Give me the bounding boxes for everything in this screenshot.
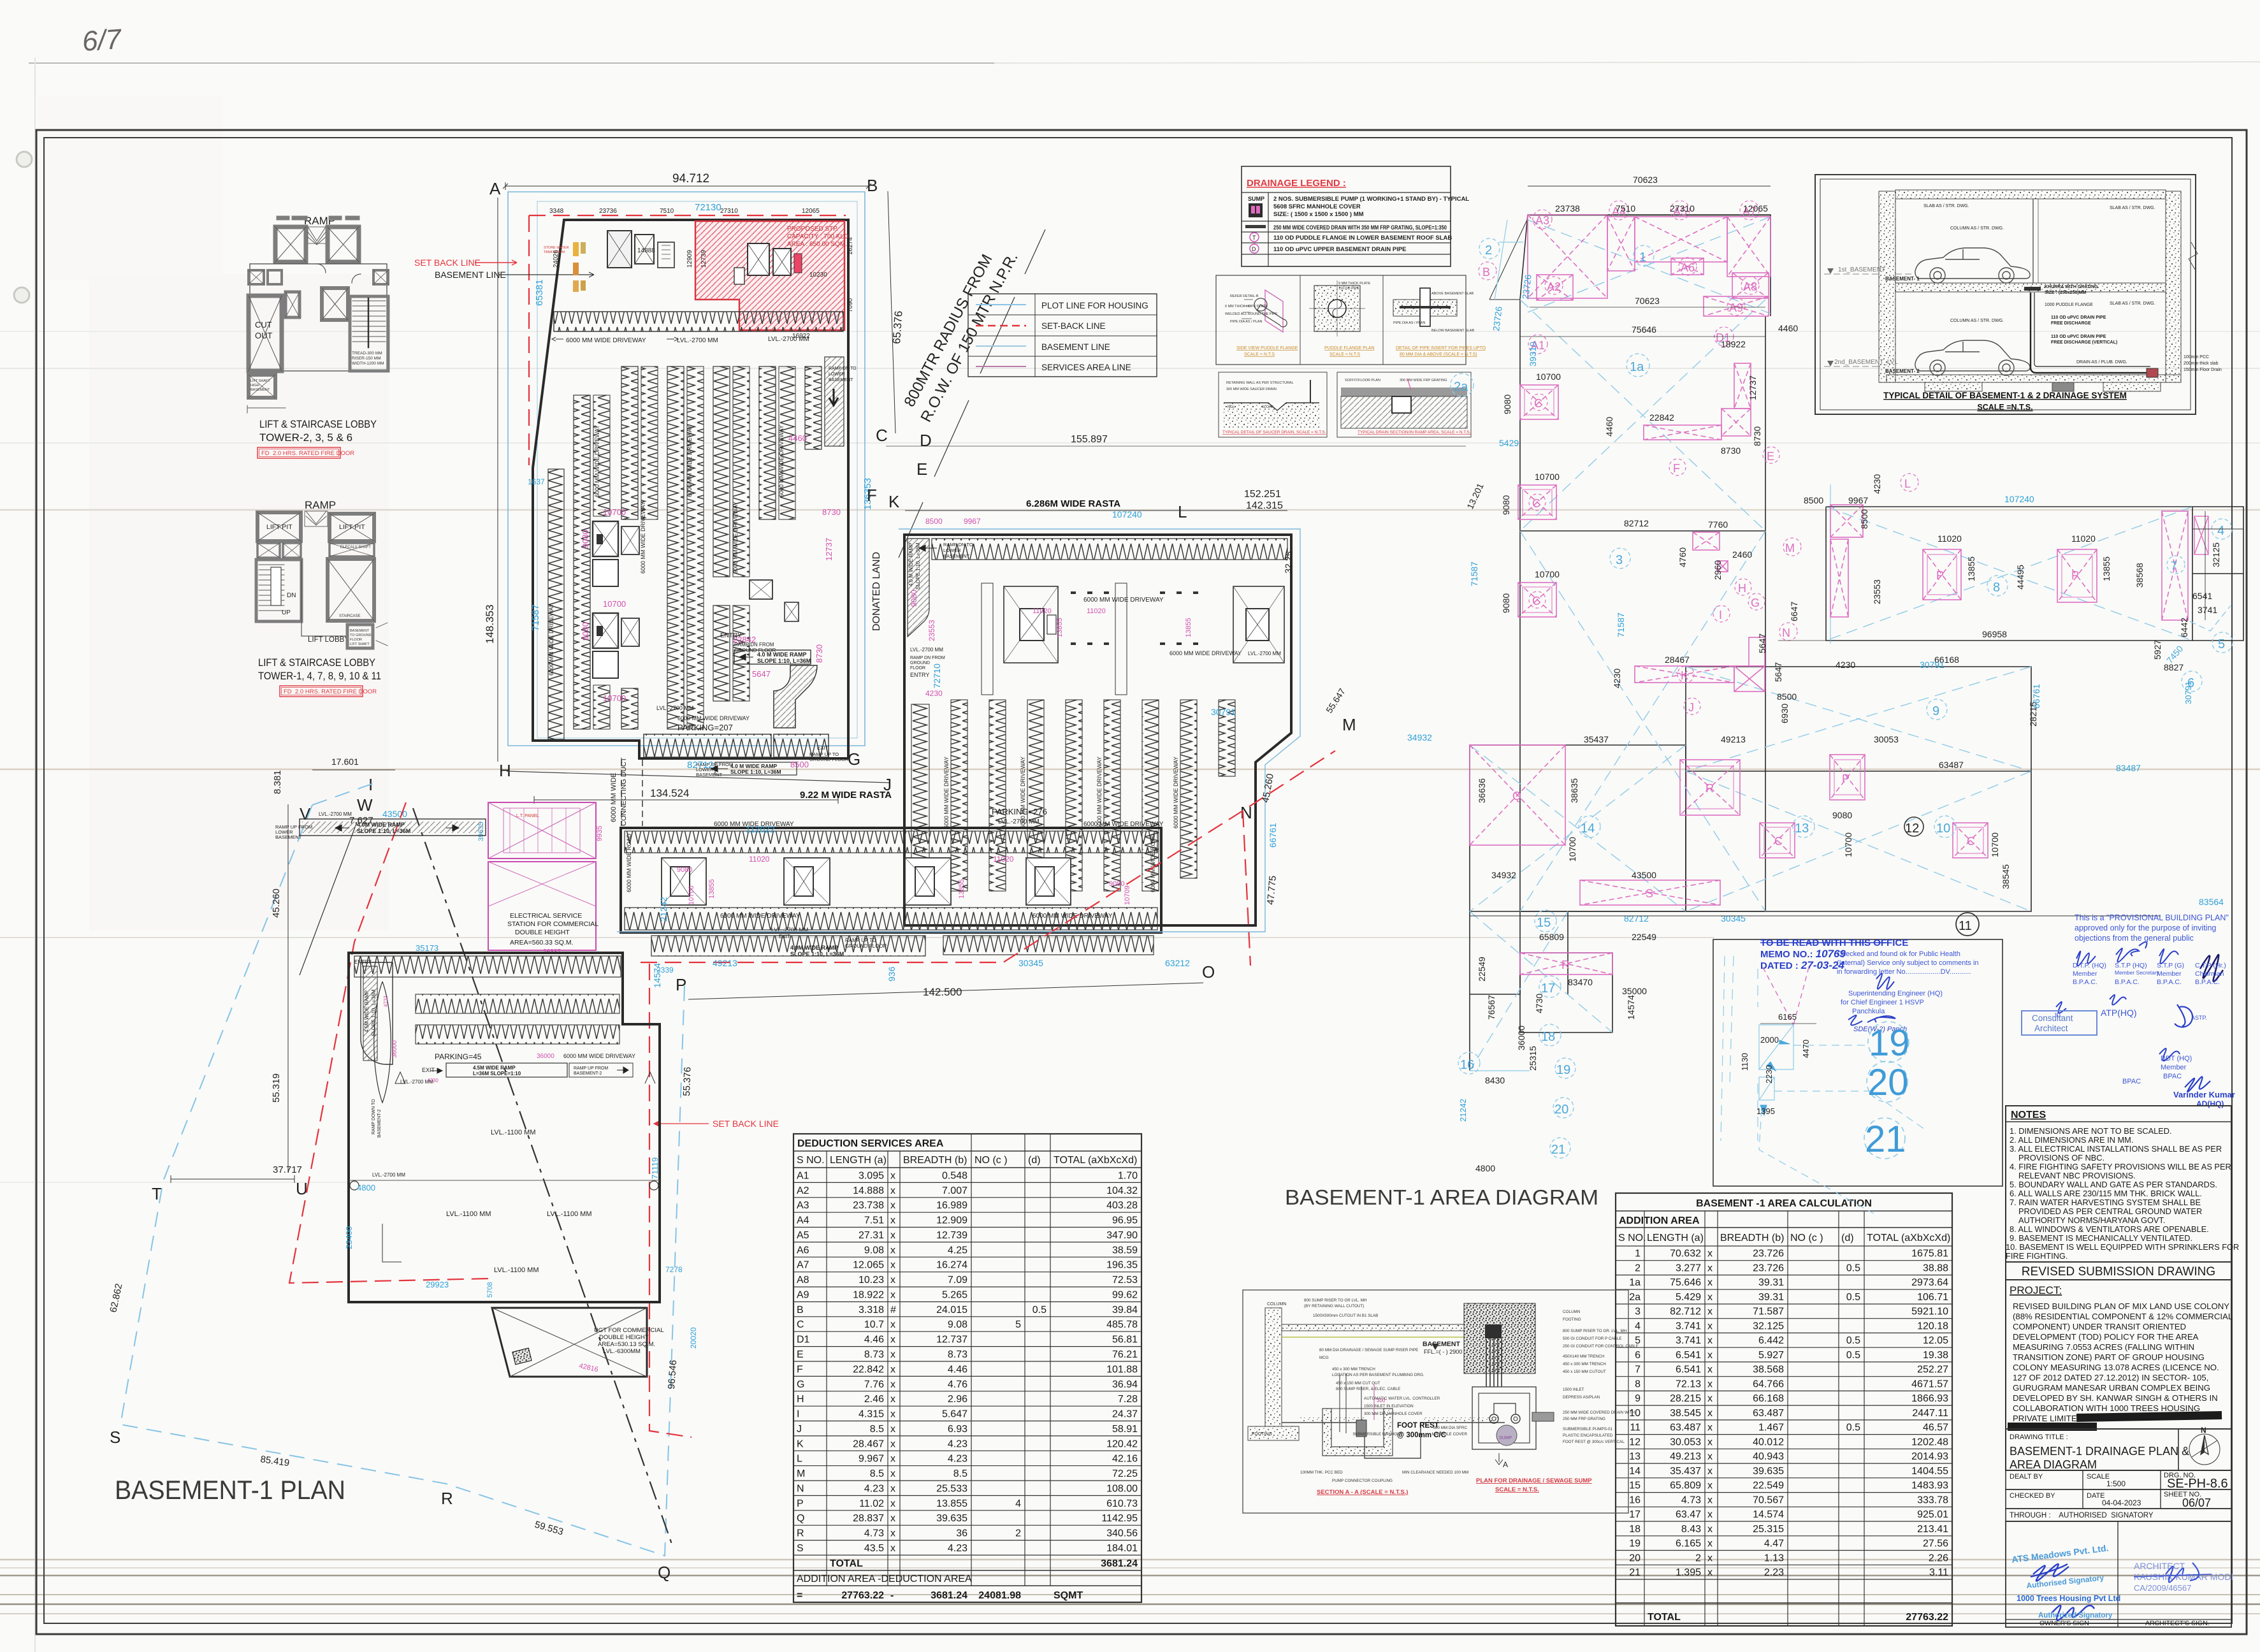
svg-text:30791: 30791	[2184, 681, 2193, 704]
svg-text:MIN CLEARANCE NEEDED 100 MM: MIN CLEARANCE NEEDED 100 MM	[1402, 1470, 1468, 1475]
svg-text:0.5: 0.5	[1846, 1423, 1860, 1433]
svg-text:3741: 3741	[2198, 605, 2217, 615]
svg-text:300 MM WIDE FRP GRATING: 300 MM WIDE FRP GRATING	[1400, 379, 1447, 382]
svg-text:21242: 21242	[658, 897, 669, 922]
svg-text:6000 MM WIDE: 6000 MM WIDE	[610, 772, 618, 822]
svg-text:x: x	[890, 1498, 895, 1509]
svg-text:DN: DN	[287, 592, 296, 599]
svg-text:4800: 4800	[357, 1183, 375, 1192]
svg-text:9080: 9080	[909, 590, 918, 607]
svg-text:13855: 13855	[1185, 618, 1192, 637]
svg-text:DEALT BY: DEALT BY	[2010, 1473, 2043, 1481]
svg-text:23400: 23400	[344, 1226, 354, 1249]
svg-text:LVL.-1100 MM: LVL.-1100 MM	[491, 1129, 536, 1136]
svg-text:D.T.P. (HQ): D.T.P. (HQ)	[2073, 962, 2106, 969]
svg-text:107240: 107240	[1112, 509, 1142, 519]
svg-text:D: D	[1252, 246, 1256, 252]
svg-text:22549: 22549	[1477, 957, 1487, 982]
svg-text:A8: A8	[797, 1275, 809, 1286]
svg-text:9967: 9967	[964, 517, 981, 526]
svg-text:K: K	[888, 492, 900, 511]
svg-text:DOUBLE HEIGHT: DOUBLE HEIGHT	[599, 1334, 649, 1341]
svg-text:99.62: 99.62	[1112, 1290, 1138, 1301]
svg-text:63.487: 63.487	[1753, 1408, 1784, 1419]
svg-text:1500 INLET IN ELEVATION: 1500 INLET IN ELEVATION	[1364, 1404, 1414, 1409]
svg-text:250 MM WIDE COVERED DRAIN WITH: 250 MM WIDE COVERED DRAIN WITH	[1563, 1410, 1635, 1415]
svg-text:4671.57: 4671.57	[1911, 1379, 1948, 1389]
svg-text:49.213: 49.213	[1670, 1451, 1701, 1462]
svg-text:BASEMENT- 2: BASEMENT- 2	[1885, 368, 1920, 374]
svg-text:38.568: 38.568	[1753, 1365, 1784, 1375]
svg-text:COLUMN: COLUMN	[1563, 1310, 1581, 1314]
svg-text:REVISED BUILDING PLAN OF MIX L: REVISED BUILDING PLAN OF MIX LAND USE CO…	[2013, 1301, 2229, 1311]
svg-text:12739: 12739	[700, 250, 707, 268]
svg-text:2.0 HRS. RATED FIRE DOOR: 2.0 HRS. RATED FIRE DOOR	[295, 688, 377, 695]
svg-text:AREA=530.13 SQ.M.: AREA=530.13 SQ.M.	[598, 1341, 655, 1348]
svg-text:LVL.-6300MM: LVL.-6300MM	[603, 1348, 641, 1355]
svg-text:6000 MM WIDE ROAD: 6000 MM WIDE ROAD	[626, 833, 632, 892]
svg-text:x: x	[1707, 1365, 1713, 1375]
svg-text:4800: 4800	[1475, 1163, 1495, 1173]
svg-text:6000 MM WIDE DRIVEWAY: 6000 MM WIDE DRIVEWAY	[563, 1053, 635, 1059]
svg-text:x: x	[1707, 1321, 1713, 1331]
svg-text:BASEMENT-2: BASEMENT-2	[574, 1071, 602, 1076]
svg-text:J: J	[797, 1424, 802, 1435]
svg-text:x: x	[890, 1170, 895, 1181]
svg-text:RAMP DN TO: RAMP DN TO	[943, 542, 973, 547]
svg-text:EXIT: EXIT	[817, 745, 829, 751]
svg-text:12065: 12065	[802, 208, 820, 215]
svg-text:LVL.-1100 MM: LVL.-1100 MM	[494, 1266, 539, 1274]
svg-text:8430: 8430	[1485, 1075, 1505, 1085]
svg-text:13.855: 13.855	[936, 1498, 967, 1509]
svg-text:6.165: 6.165	[1676, 1539, 1701, 1549]
svg-text:150mm Floor Drain: 150mm Floor Drain	[2184, 368, 2222, 372]
svg-text:13: 13	[1795, 822, 1809, 836]
svg-text:1a: 1a	[1630, 360, 1644, 374]
svg-text:4.76: 4.76	[948, 1379, 967, 1390]
svg-text:x: x	[1707, 1350, 1713, 1361]
svg-text:LOCATION AS PER BASEMENT PLUMB: LOCATION AS PER BASEMENT PLUMBING DRG.	[1332, 1373, 1424, 1377]
svg-text:23736: 23736	[599, 208, 617, 215]
svg-text:38568: 38568	[2134, 563, 2145, 588]
svg-text:Architect: Architect	[2034, 1024, 2068, 1033]
svg-text:x: x	[890, 1349, 895, 1360]
svg-text:34932: 34932	[1491, 870, 1516, 880]
svg-text:8.5: 8.5	[870, 1424, 884, 1435]
svg-text:6. ALL WALLS ARE 230/115 MM TH: 6. ALL WALLS ARE 230/115 MM THK. BRICK W…	[2010, 1189, 2202, 1198]
svg-text:10709: 10709	[1124, 885, 1131, 905]
svg-text:4.23: 4.23	[948, 1543, 967, 1554]
svg-text:4730: 4730	[1534, 994, 1544, 1013]
svg-text:SIZE : (250x250)MM: SIZE : (250x250)MM	[2045, 291, 2087, 295]
svg-text:6.442: 6.442	[1758, 1335, 1784, 1346]
svg-text:C: C	[1967, 835, 1975, 848]
svg-text:925.01: 925.01	[1917, 1509, 1948, 1520]
svg-text:80 MM DIA & ABOVE (SCALE = N.T: 80 MM DIA & ABOVE (SCALE = N.T.S)	[1400, 352, 1477, 357]
svg-text:MANHOLE COVER: MANHOLE COVER	[1432, 1432, 1468, 1437]
svg-text:A1: A1	[797, 1170, 809, 1181]
svg-text:MEMO NO.: 10769: MEMO NO.: 10769	[1760, 948, 1846, 960]
svg-text:PUMP CONNECTOR COUPLING: PUMP CONNECTOR COUPLING	[1332, 1479, 1393, 1483]
svg-text:10700: 10700	[603, 507, 626, 517]
svg-text:LVL.-2700 MM: LVL.-2700 MM	[998, 818, 1039, 825]
svg-text:250 MM WIDE COVERED DRAIN WITH: 250 MM WIDE COVERED DRAIN WITH 350 MM FR…	[1273, 224, 1447, 231]
svg-text:TRANSITION ZONE) PART OF GROUP: TRANSITION ZONE) PART OF GROUP HOUSING	[2013, 1352, 2205, 1362]
svg-text:34932: 34932	[1407, 732, 1432, 743]
svg-text:3.095: 3.095	[858, 1170, 884, 1181]
svg-text:3.741: 3.741	[1676, 1335, 1701, 1346]
svg-text:DRAWING TITLE :: DRAWING TITLE :	[2010, 1433, 2068, 1441]
svg-text:LVL.-2700 MM: LVL.-2700 MM	[1248, 651, 1281, 656]
svg-text:AREA=560.33 SQ.M.: AREA=560.33 SQ.M.	[510, 939, 574, 946]
svg-text:EXIT: EXIT	[422, 1067, 435, 1073]
svg-text:LENGTH (a): LENGTH (a)	[830, 1155, 887, 1166]
svg-text:BASEMENT-2: BASEMENT-2	[377, 1110, 382, 1138]
svg-text:SET BACK LINE: SET BACK LINE	[414, 257, 481, 268]
svg-text:NOTES: NOTES	[2011, 1110, 2046, 1120]
svg-text:PROVISIONS OF NBC.: PROVISIONS OF NBC.	[2018, 1153, 2104, 1163]
svg-text:27.31: 27.31	[858, 1230, 884, 1241]
svg-text:7: 7	[1635, 1365, 1641, 1375]
svg-text:0.548: 0.548	[942, 1170, 967, 1181]
svg-text:101.88: 101.88	[1106, 1364, 1138, 1375]
svg-text:SCALE = N.T.S: SCALE = N.T.S	[1329, 352, 1360, 357]
svg-text:SLOPE 1:10, L=36M: SLOPE 1:10, L=36M	[357, 828, 410, 834]
svg-text:9935: 9935	[596, 826, 604, 841]
svg-text:COLUMN: COLUMN	[1267, 1302, 1286, 1307]
svg-text:9. BASEMENT IS MECHANICALLY VE: 9. BASEMENT IS MECHANICALLY VENTILATED.	[2010, 1233, 2192, 1243]
svg-text:11020: 11020	[1087, 607, 1106, 615]
svg-text:1500X500mm CUTOUT IN B1 SLAB: 1500X500mm CUTOUT IN B1 SLAB	[1313, 1314, 1378, 1318]
svg-text:0.5: 0.5	[1846, 1263, 1860, 1274]
svg-text:OUT: OUT	[255, 331, 273, 340]
svg-text:7.09: 7.09	[948, 1275, 967, 1286]
svg-text:4.73: 4.73	[864, 1528, 884, 1539]
svg-text:2: 2	[1015, 1528, 1021, 1539]
svg-text:12.065: 12.065	[853, 1260, 884, 1271]
svg-text:(BY RETAINING WALL CUTOUT): (BY RETAINING WALL CUTOUT)	[1304, 1304, 1364, 1308]
svg-text:Q: Q	[658, 1563, 670, 1582]
svg-text:40.943: 40.943	[1753, 1451, 1784, 1462]
svg-text:A8: A8	[1743, 280, 1757, 293]
svg-text:GURUGRAM MANESAR URBAN COMPLEX: GURUGRAM MANESAR URBAN COMPLEX BEING	[2013, 1383, 2210, 1393]
svg-text:A3: A3	[1535, 214, 1549, 227]
svg-text:16: 16	[1629, 1495, 1641, 1505]
svg-text:KHURRA WITH GRATING: KHURRA WITH GRATING	[2045, 285, 2098, 289]
svg-text:TOTAL (aXbXcXd): TOTAL (aXbXcXd)	[1054, 1155, 1137, 1166]
svg-text:4.23: 4.23	[864, 1484, 884, 1495]
svg-text:7760: 7760	[1708, 519, 1728, 530]
svg-text:3: 3	[1616, 553, 1623, 567]
svg-text:Member: Member	[2157, 970, 2182, 978]
svg-text:x: x	[1707, 1524, 1713, 1535]
svg-text:14.574: 14.574	[1753, 1509, 1784, 1520]
svg-text:CONNECTING DUCT: CONNECTING DUCT	[620, 757, 628, 826]
svg-text:36.94: 36.94	[1112, 1379, 1138, 1390]
svg-text:x: x	[1707, 1335, 1713, 1346]
svg-text:2: 2	[1635, 1263, 1641, 1274]
svg-text:x: x	[890, 1230, 895, 1241]
svg-text:8730: 8730	[1752, 426, 1762, 446]
svg-text:SLAB AS / STR. DWG.: SLAB AS / STR. DWG.	[2110, 301, 2155, 306]
svg-text:10700: 10700	[688, 885, 695, 905]
svg-text:RELEVANT NBC PROVISIONS.: RELEVANT NBC PROVISIONS.	[2018, 1171, 2136, 1180]
svg-text:4: 4	[2217, 524, 2224, 538]
svg-text:8827: 8827	[2164, 662, 2184, 672]
svg-text:BASEMENT-1 AREA DIAGRAM: BASEMENT-1 AREA DIAGRAM	[1285, 1185, 1598, 1209]
svg-text:SLAB AS / STR. DWG.: SLAB AS / STR. DWG.	[1923, 204, 1969, 208]
svg-text:J: J	[1688, 701, 1694, 714]
svg-text:A5: A5	[797, 1230, 809, 1241]
svg-text:4.23: 4.23	[948, 1438, 967, 1449]
svg-text:55.376: 55.376	[681, 1067, 693, 1096]
svg-text:15: 15	[1537, 916, 1551, 930]
svg-text:4230: 4230	[1836, 660, 1855, 670]
svg-text:66761: 66761	[2031, 684, 2041, 709]
svg-text:U: U	[296, 1179, 308, 1198]
svg-text:C: C	[876, 426, 888, 445]
svg-text:2 NOS. SUBMERSIBLE PUMP (1 WOR: 2 NOS. SUBMERSIBLE PUMP (1 WORKING+1 STA…	[1273, 196, 1469, 203]
svg-text:25.533: 25.533	[936, 1484, 967, 1495]
svg-text:35437: 35437	[1584, 734, 1609, 744]
svg-text:SERVICES AREA LINE: SERVICES AREA LINE	[1041, 363, 1131, 372]
svg-text:23738: 23738	[1555, 203, 1580, 214]
svg-text:12: 12	[1905, 822, 1919, 836]
svg-text:FD: FD	[284, 688, 292, 695]
svg-text:110 OD uPVC DRAIN PIPE: 110 OD uPVC DRAIN PIPE	[2051, 335, 2106, 339]
svg-text:x: x	[890, 1215, 895, 1226]
svg-text:L: L	[1904, 477, 1911, 490]
svg-text:SCALE = N.T.S: SCALE = N.T.S	[1244, 352, 1275, 357]
svg-text:1. DIMENSIONS ARE NOT TO BE SC: 1. DIMENSIONS ARE NOT TO BE SCALED.	[2010, 1126, 2172, 1136]
svg-text:for Chief Engineer 1 HSVP: for Chief Engineer 1 HSVP	[1841, 999, 1924, 1006]
svg-text:120.18: 120.18	[1917, 1321, 1948, 1331]
svg-text:2a: 2a	[1629, 1292, 1641, 1303]
svg-text:LVL.-1100 MM: LVL.-1100 MM	[547, 1210, 592, 1218]
svg-text:BASEMENT: BASEMENT	[350, 629, 370, 633]
svg-text:COMPONENT) UNDER TRANSIT ORIEN: COMPONENT) UNDER TRANSIT ORIENTED	[2013, 1322, 2186, 1331]
svg-text:(Internal) Service only subjec: (Internal) Service only subject to comme…	[1837, 959, 1979, 967]
svg-text:SIZE: ( 1500 x 1500 x 1500 ) M: SIZE: ( 1500 x 1500 x 1500 ) MM	[1273, 211, 1364, 218]
svg-text:DETAIL OF PIPE INSERT FOR PIPE: DETAIL OF PIPE INSERT FOR PIPES UPTO	[1396, 346, 1486, 351]
svg-text:70623: 70623	[1635, 296, 1660, 306]
svg-text:FLOOR: FLOOR	[350, 638, 362, 642]
svg-text:30791: 30791	[1211, 707, 1236, 717]
svg-text:2: 2	[1695, 1553, 1701, 1563]
svg-text:83470: 83470	[1568, 977, 1593, 987]
svg-text:7510: 7510	[1616, 203, 1635, 214]
svg-text:8.5: 8.5	[953, 1468, 967, 1479]
svg-text:46.57: 46.57	[1923, 1423, 1948, 1433]
svg-text:6.541: 6.541	[1676, 1350, 1701, 1361]
svg-text:110 OD uPVC DRAIN PIPE: 110 OD uPVC DRAIN PIPE	[2051, 315, 2106, 320]
svg-text:A6: A6	[797, 1245, 809, 1256]
svg-text:DDT (HQ): DDT (HQ)	[2161, 1055, 2192, 1062]
svg-text:155.897: 155.897	[1071, 434, 1108, 445]
svg-text:HIGH: HIGH	[250, 384, 259, 388]
svg-text:76567: 76567	[1486, 995, 1496, 1020]
svg-text:1:500: 1:500	[2106, 1479, 2126, 1488]
svg-text:DRAINAGE LEGEND :: DRAINAGE LEGEND :	[1247, 178, 1346, 189]
svg-text:4460: 4460	[1604, 417, 1614, 437]
svg-text:CAPACITY : 700 KLD: CAPACITY : 700 KLD	[787, 233, 848, 240]
svg-text:134.524: 134.524	[650, 787, 689, 799]
svg-text:12.739: 12.739	[936, 1230, 967, 1241]
svg-text:C: C	[1774, 835, 1783, 848]
svg-text:100MM THK. PCC BED: 100MM THK. PCC BED	[1300, 1470, 1343, 1475]
svg-text:8.73: 8.73	[948, 1349, 967, 1360]
svg-text:12.737: 12.737	[936, 1335, 967, 1345]
svg-text:TYPICAL DETAIL OF SAUCER DRAIN: TYPICAL DETAIL OF SAUCER DRAIN, SCALE = …	[1222, 430, 1326, 435]
svg-text:TOTAL: TOTAL	[1648, 1612, 1681, 1623]
svg-text:BASEMENT -1 AREA CALCULATION: BASEMENT -1 AREA CALCULATION	[1696, 1198, 1872, 1209]
svg-text:5.429: 5.429	[1676, 1292, 1701, 1303]
svg-text:65.809: 65.809	[1670, 1481, 1701, 1491]
svg-text:SUBMERSIBLE MANHOLE: SUBMERSIBLE MANHOLE	[1352, 1432, 1402, 1437]
svg-text:450 x 300 MM TRENCH: 450 x 300 MM TRENCH	[1563, 1362, 1606, 1366]
svg-text:4. FIRE FIGHTING SAFETY PROVIS: 4. FIRE FIGHTING SAFETY PROVISIONS WILL …	[2010, 1162, 2231, 1171]
svg-text:ARCHITECT'S SIGN.: ARCHITECT'S SIGN.	[2145, 1619, 2210, 1627]
svg-text:STORE WATER: STORE WATER	[544, 246, 569, 250]
svg-text:LIFT PIT: LIFT PIT	[266, 523, 293, 531]
svg-text:10700: 10700	[1990, 832, 2000, 857]
svg-text:x: x	[890, 1275, 895, 1286]
svg-text:6000 MM WIDE DRIVEWAY: 6000 MM WIDE DRIVEWAY	[1096, 757, 1103, 829]
svg-text:H: H	[797, 1394, 804, 1405]
svg-text:36000: 36000	[391, 1040, 398, 1058]
svg-text:28.467: 28.467	[853, 1438, 884, 1449]
svg-text:x: x	[890, 1290, 895, 1301]
svg-text:14574: 14574	[1626, 995, 1636, 1020]
svg-text:17: 17	[1541, 982, 1555, 996]
svg-text:4.73: 4.73	[1681, 1495, 1701, 1505]
svg-text:x: x	[1707, 1553, 1713, 1563]
svg-text:21: 21	[1629, 1567, 1641, 1578]
svg-text:SIDE VIEW PUDDLE FLANGE: SIDE VIEW PUDDLE FLANGE	[1236, 346, 1298, 351]
svg-text:5: 5	[2218, 637, 2225, 651]
svg-text:x: x	[890, 1468, 895, 1479]
svg-text:2: 2	[1485, 243, 1492, 257]
svg-text:32125: 32125	[2211, 542, 2221, 567]
svg-text:112022: 112022	[746, 824, 775, 834]
svg-text:R: R	[441, 1489, 453, 1508]
svg-text:UP: UP	[282, 609, 291, 616]
svg-text:6.541: 6.541	[1676, 1365, 1701, 1375]
svg-text:GROUND: GROUND	[910, 661, 930, 665]
svg-text:4760: 4760	[1677, 547, 1688, 567]
svg-text:24026: 24026	[553, 250, 560, 268]
svg-text:9080: 9080	[1109, 880, 1124, 888]
svg-text:COLLABORATION WITH 1000 TREES: COLLABORATION WITH 1000 TREES HOUSING	[2013, 1403, 2200, 1413]
svg-text:8: 8	[1993, 581, 2000, 595]
svg-text:K: K	[1681, 669, 1688, 682]
svg-text:=: =	[797, 1590, 802, 1601]
svg-text:4.5M WIDE RAMP: 4.5M WIDE RAMP	[473, 1065, 516, 1071]
svg-text:11: 11	[1959, 919, 1972, 933]
svg-text:4730: 4730	[427, 1078, 438, 1083]
svg-text:ASTP.: ASTP.	[2191, 1015, 2207, 1021]
svg-text:6000 MM WIDE DRIVEWAY: 6000 MM WIDE DRIVEWAY	[1083, 821, 1164, 828]
svg-text:SET-BACK LINE: SET-BACK LINE	[1041, 321, 1106, 331]
svg-text:M: M	[1785, 542, 1795, 554]
svg-text:3. ALL ELECTRICAL INSTALLATION: 3. ALL ELECTRICAL INSTALLATIONS SHALL BE…	[2010, 1144, 2222, 1154]
svg-text:450 x 150 MM CUTOUT: 450 x 150 MM CUTOUT	[1563, 1370, 1606, 1374]
svg-text:22.549: 22.549	[1753, 1481, 1784, 1491]
svg-text:36000: 36000	[537, 1053, 554, 1060]
svg-text:G: G	[848, 750, 860, 769]
svg-text:x: x	[1707, 1466, 1713, 1477]
svg-text:-: -	[890, 1590, 894, 1601]
svg-text:120.42: 120.42	[1106, 1438, 1138, 1449]
svg-text:A6: A6	[1681, 261, 1695, 274]
svg-text:83487: 83487	[2116, 763, 2141, 773]
svg-text:21242: 21242	[1458, 1099, 1468, 1122]
svg-text:(d): (d)	[1028, 1155, 1041, 1166]
svg-text:BPAC: BPAC	[2122, 1078, 2141, 1085]
svg-text:7510: 7510	[660, 208, 674, 215]
svg-text:8500: 8500	[1859, 509, 1869, 529]
svg-text:104.32: 104.32	[1106, 1185, 1138, 1196]
svg-text:6000 MM WIDE DRIVEWAY: 6000 MM WIDE DRIVEWAY	[548, 604, 554, 676]
svg-text:142.315: 142.315	[1246, 500, 1283, 511]
svg-text:BASEMENT LINE: BASEMENT LINE	[435, 270, 506, 280]
svg-text:6: 6	[1635, 1350, 1641, 1361]
svg-text:80 MM DIA DRAINAGE / SEWAGE SU: 80 MM DIA DRAINAGE / SEWAGE SUMP RISER P…	[1319, 1348, 1418, 1352]
svg-text:250 GI CONDUIT FOR CONTROL CAB: 250 GI CONDUIT FOR CONTROL CABLE	[1563, 1344, 1639, 1349]
svg-text:x: x	[1707, 1567, 1713, 1578]
svg-text:LIFT SHAFT: LIFT SHAFT	[250, 379, 270, 383]
svg-text:1675.81: 1675.81	[1911, 1249, 1948, 1259]
svg-text:39.635: 39.635	[936, 1513, 967, 1524]
svg-text:COLUMN AS / STR. DWG.: COLUMN AS / STR. DWG.	[1950, 319, 2004, 323]
svg-text:4.25: 4.25	[948, 1245, 967, 1256]
svg-text:1500 INLET: 1500 INLET	[1563, 1388, 1584, 1392]
svg-text:16274: 16274	[847, 237, 854, 255]
svg-text:REFER DETAIL-B: REFER DETAIL-B	[1230, 294, 1259, 298]
svg-text:STATION FOR COMMERCIAL: STATION FOR COMMERCIAL	[507, 920, 598, 928]
svg-text:PIPE DIA AS / PLAN: PIPE DIA AS / PLAN	[1230, 320, 1262, 324]
svg-text:24.015: 24.015	[936, 1305, 967, 1315]
svg-text:19.38: 19.38	[1923, 1350, 1948, 1361]
svg-text:500 MM DIA SFRC: 500 MM DIA SFRC	[1433, 1426, 1467, 1430]
svg-text:4460: 4460	[788, 433, 807, 443]
svg-text:RAMP DOWN TO: RAMP DOWN TO	[372, 1099, 376, 1134]
svg-text:4230: 4230	[1612, 669, 1622, 688]
svg-text:22549: 22549	[1632, 932, 1656, 942]
svg-text:This is a "PROVISIONAL BUILDIN: This is a "PROVISIONAL BUILDING PLAN"	[2075, 913, 2229, 922]
svg-text:63212: 63212	[1165, 958, 1190, 968]
svg-text:4470: 4470	[1801, 1040, 1811, 1058]
svg-text:R: R	[797, 1528, 804, 1539]
svg-text:5429: 5429	[1499, 438, 1519, 448]
svg-text:63487: 63487	[1939, 760, 1964, 770]
svg-text:approved only for the purpose: approved only for the purpose of invitin…	[2075, 924, 2216, 932]
svg-text:12737: 12737	[824, 538, 834, 561]
svg-text:27310: 27310	[720, 208, 738, 215]
svg-text:5.647: 5.647	[942, 1409, 967, 1420]
svg-text:7.627: 7.627	[349, 815, 373, 826]
svg-text:36: 36	[956, 1528, 967, 1539]
svg-text:2.96: 2.96	[948, 1394, 967, 1405]
svg-text:BASEMENT LINE: BASEMENT LINE	[1041, 342, 1110, 352]
svg-text:2230: 2230	[1764, 1065, 1774, 1083]
svg-text:I: I	[797, 1409, 799, 1420]
svg-text:7090: 7090	[847, 298, 854, 312]
svg-text:8500: 8500	[790, 760, 809, 769]
svg-text:347.90: 347.90	[1106, 1230, 1138, 1241]
svg-text:BREADTH (b): BREADTH (b)	[903, 1155, 967, 1166]
